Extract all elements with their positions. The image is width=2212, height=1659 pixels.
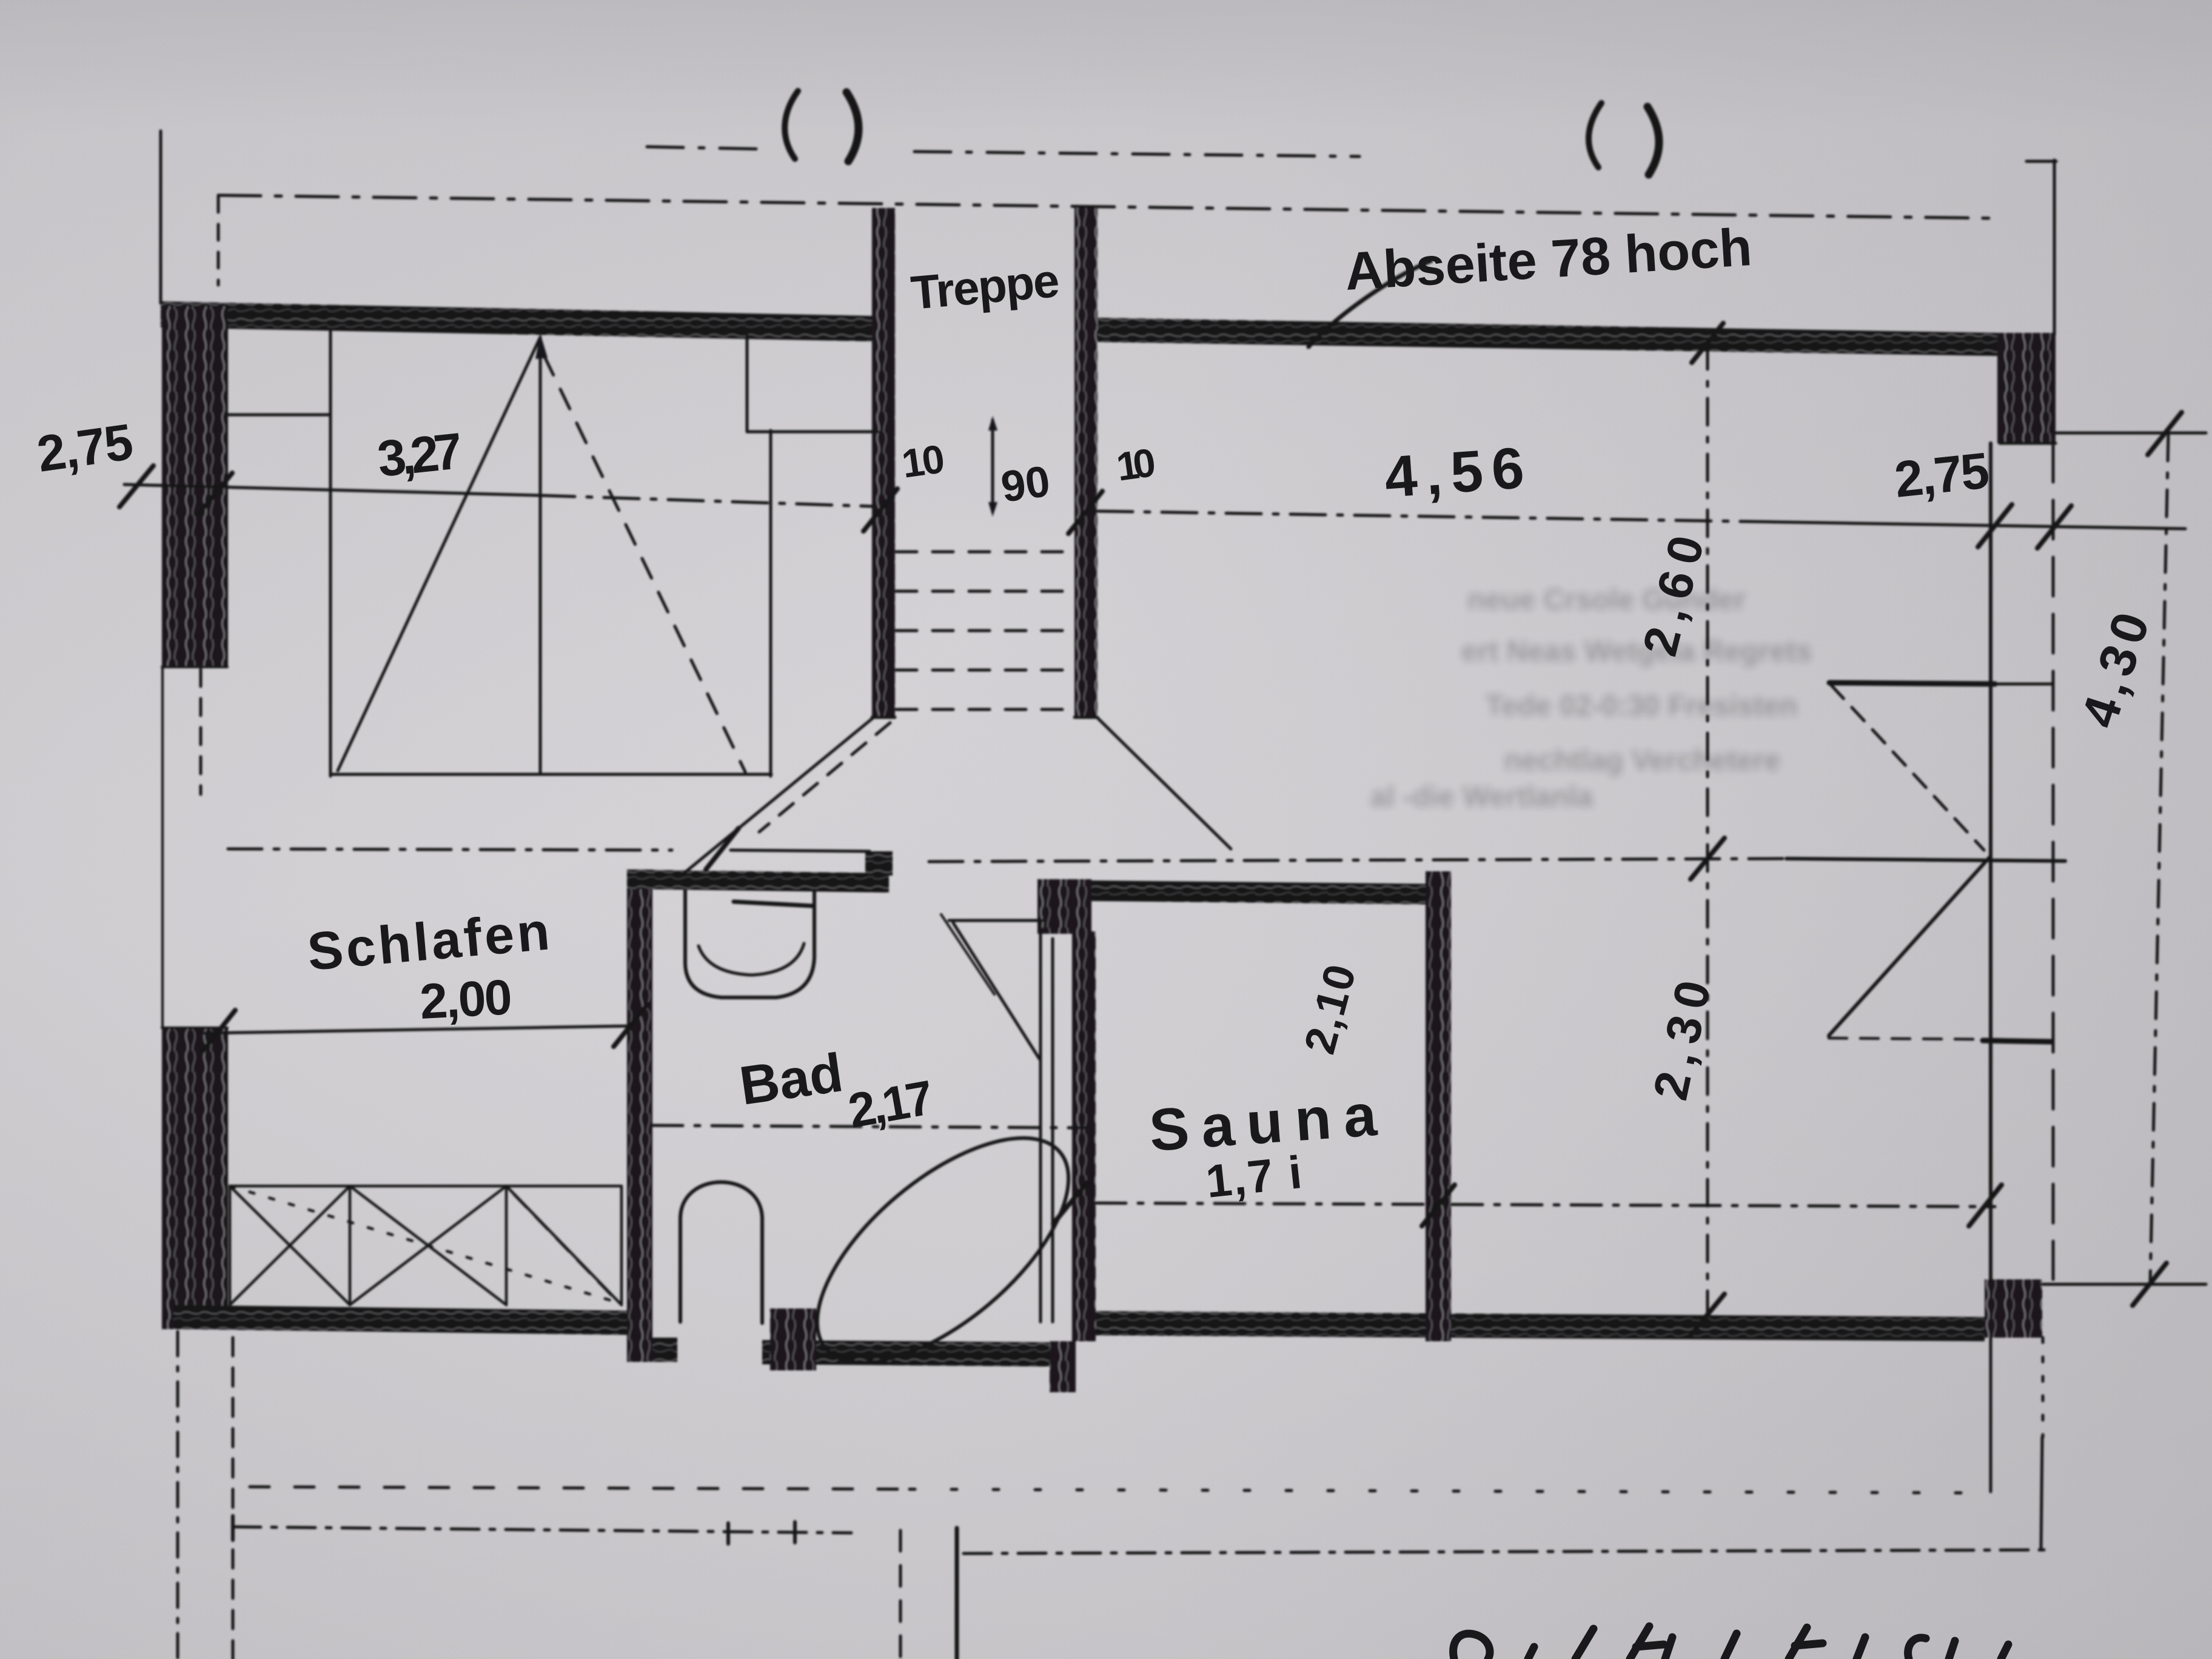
svg-text:4,56: 4,56 (1382, 435, 1526, 510)
svg-text:90: 90 (998, 457, 1053, 511)
svg-text:3,27: 3,27 (375, 422, 465, 488)
svg-text:1,7 i: 1,7 i (1204, 1147, 1304, 1208)
svg-text:al -die Wertlanla: al -die Wertlanla (1370, 781, 1594, 813)
svg-text:10: 10 (899, 436, 948, 486)
svg-text:2,75: 2,75 (1892, 441, 1992, 508)
svg-text:neue Crsole Gunder: neue Crsole Gunder (1467, 584, 1746, 616)
svg-text:2,00: 2,00 (418, 970, 514, 1030)
svg-text:10: 10 (1114, 440, 1159, 489)
svg-text:nechtlag Verchetere: nechtlag Verchetere (1504, 745, 1780, 777)
svg-text:Tede 02-0:30 Fresisten: Tede 02-0:30 Fresisten (1486, 690, 1797, 722)
